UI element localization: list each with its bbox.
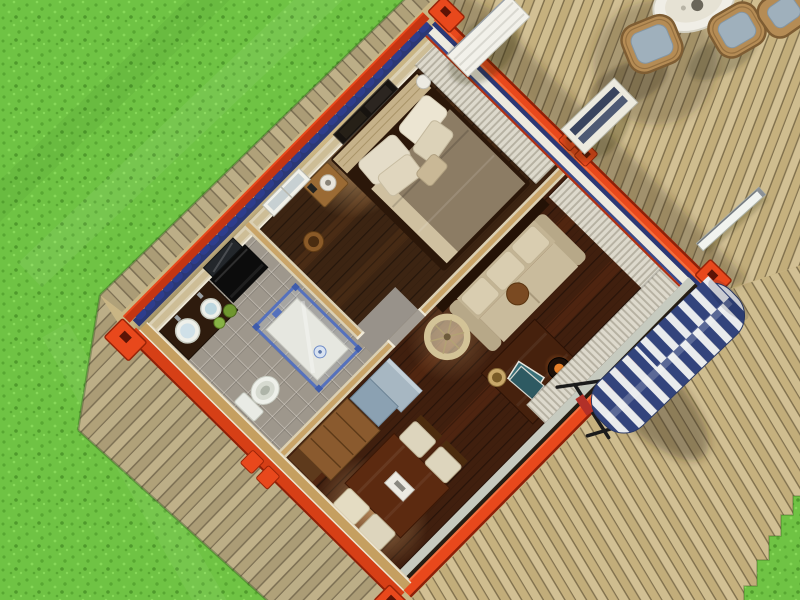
container-home-render [0,0,800,600]
scene-render: Top-down 3D rendering of a two-module sh… [0,0,800,600]
